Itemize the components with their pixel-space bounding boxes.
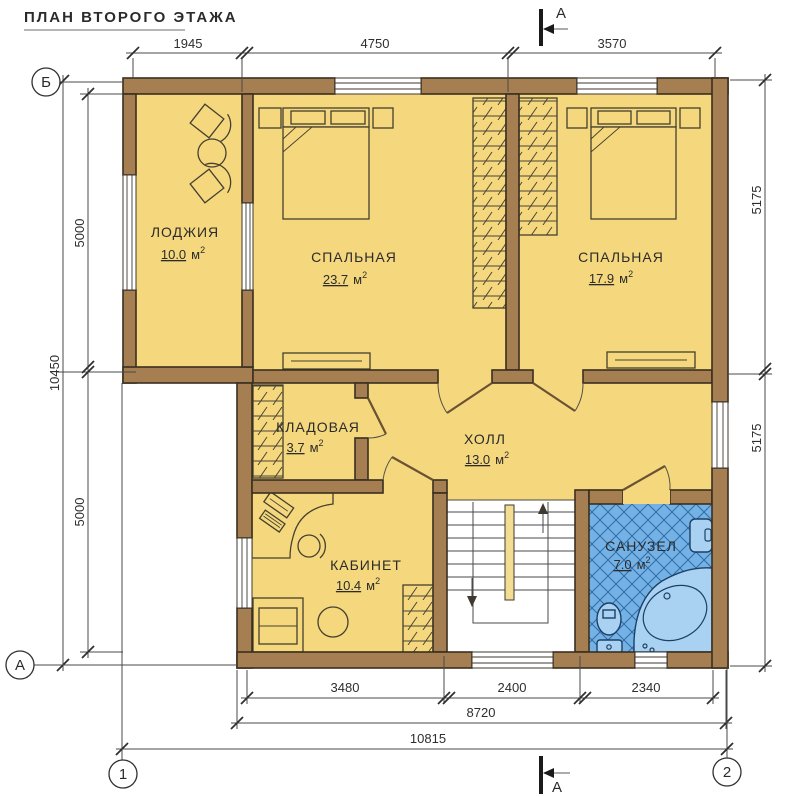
nightstand (259, 108, 281, 128)
pillow (637, 111, 670, 124)
room-area-hall: 13.0м2 (465, 450, 509, 467)
room-label-office: КАБИНЕТ (330, 557, 402, 573)
room-area-bedroom1: 23.7м2 (323, 270, 367, 287)
floor-plan-page: ЛОДЖИЯ 10.0м2 СПАЛЬНАЯ 23.7м2 СПАЛЬНАЯ 1… (0, 0, 800, 797)
axis-label-1: 1 (119, 766, 127, 783)
window-stairs (472, 652, 553, 668)
window-bathroom (635, 652, 667, 668)
dim-top-1: 1945 (174, 36, 203, 51)
room-area-office: 10.4м2 (336, 576, 380, 593)
axis-label-b: Б (41, 74, 51, 91)
dim-left-lower: 5000 (72, 498, 87, 527)
toilet-bowl (597, 603, 621, 635)
dim-left-total: 10450 (47, 355, 62, 391)
dim-bottom-2: 2400 (498, 680, 527, 695)
room-area-bedroom2: 17.9м2 (589, 269, 633, 286)
room-label-bathroom: САНУЗЕЛ (605, 538, 677, 554)
section-label-bottom: А (552, 779, 562, 796)
room-area-loggia: 10.0м2 (161, 245, 205, 262)
stair-divider (505, 505, 514, 600)
nightstand (567, 108, 587, 128)
page-title: ПЛАН ВТОРОГО ЭТАЖА (24, 9, 238, 26)
window-hall (712, 402, 728, 468)
window-office (237, 538, 252, 608)
section-label-top: А (556, 5, 566, 22)
dim-bottom-mid: 8720 (467, 705, 496, 720)
balcony-door (242, 203, 253, 290)
dim-left-upper: 5000 (72, 219, 87, 248)
room-label-bedroom1: СПАЛЬНАЯ (311, 249, 397, 265)
pillow (331, 111, 365, 124)
room-label-hall: ХОЛЛ (464, 431, 506, 447)
axis-label-a: А (15, 657, 25, 674)
dim-top-2: 4750 (361, 36, 390, 51)
nightstand (680, 108, 700, 128)
nightstand (373, 108, 393, 128)
dim-top-3: 3570 (598, 36, 627, 51)
toilet-tank (597, 640, 622, 653)
window-bedroom1 (335, 78, 421, 94)
pillow (598, 111, 631, 124)
window-loggia (123, 175, 136, 290)
dim-right-lower: 5175 (749, 424, 764, 453)
room-label-storeroom: КЛАДОВАЯ (276, 419, 360, 435)
floor-plan-drawing: ЛОДЖИЯ 10.0м2 СПАЛЬНАЯ 23.7м2 СПАЛЬНАЯ 1… (0, 0, 800, 797)
dim-bottom-3: 2340 (632, 680, 661, 695)
dim-bottom-1: 3480 (331, 680, 360, 695)
room-label-bedroom2: СПАЛЬНАЯ (578, 249, 664, 265)
dim-right-upper: 5175 (749, 186, 764, 215)
window-bedroom2 (577, 78, 657, 94)
title-block: ПЛАН ВТОРОГО ЭТАЖА (24, 9, 238, 30)
room-label-loggia: ЛОДЖИЯ (151, 224, 219, 240)
sink (690, 519, 712, 552)
pillow (291, 111, 325, 124)
axis-label-2: 2 (723, 764, 731, 781)
dim-bottom-total: 10815 (410, 731, 446, 746)
